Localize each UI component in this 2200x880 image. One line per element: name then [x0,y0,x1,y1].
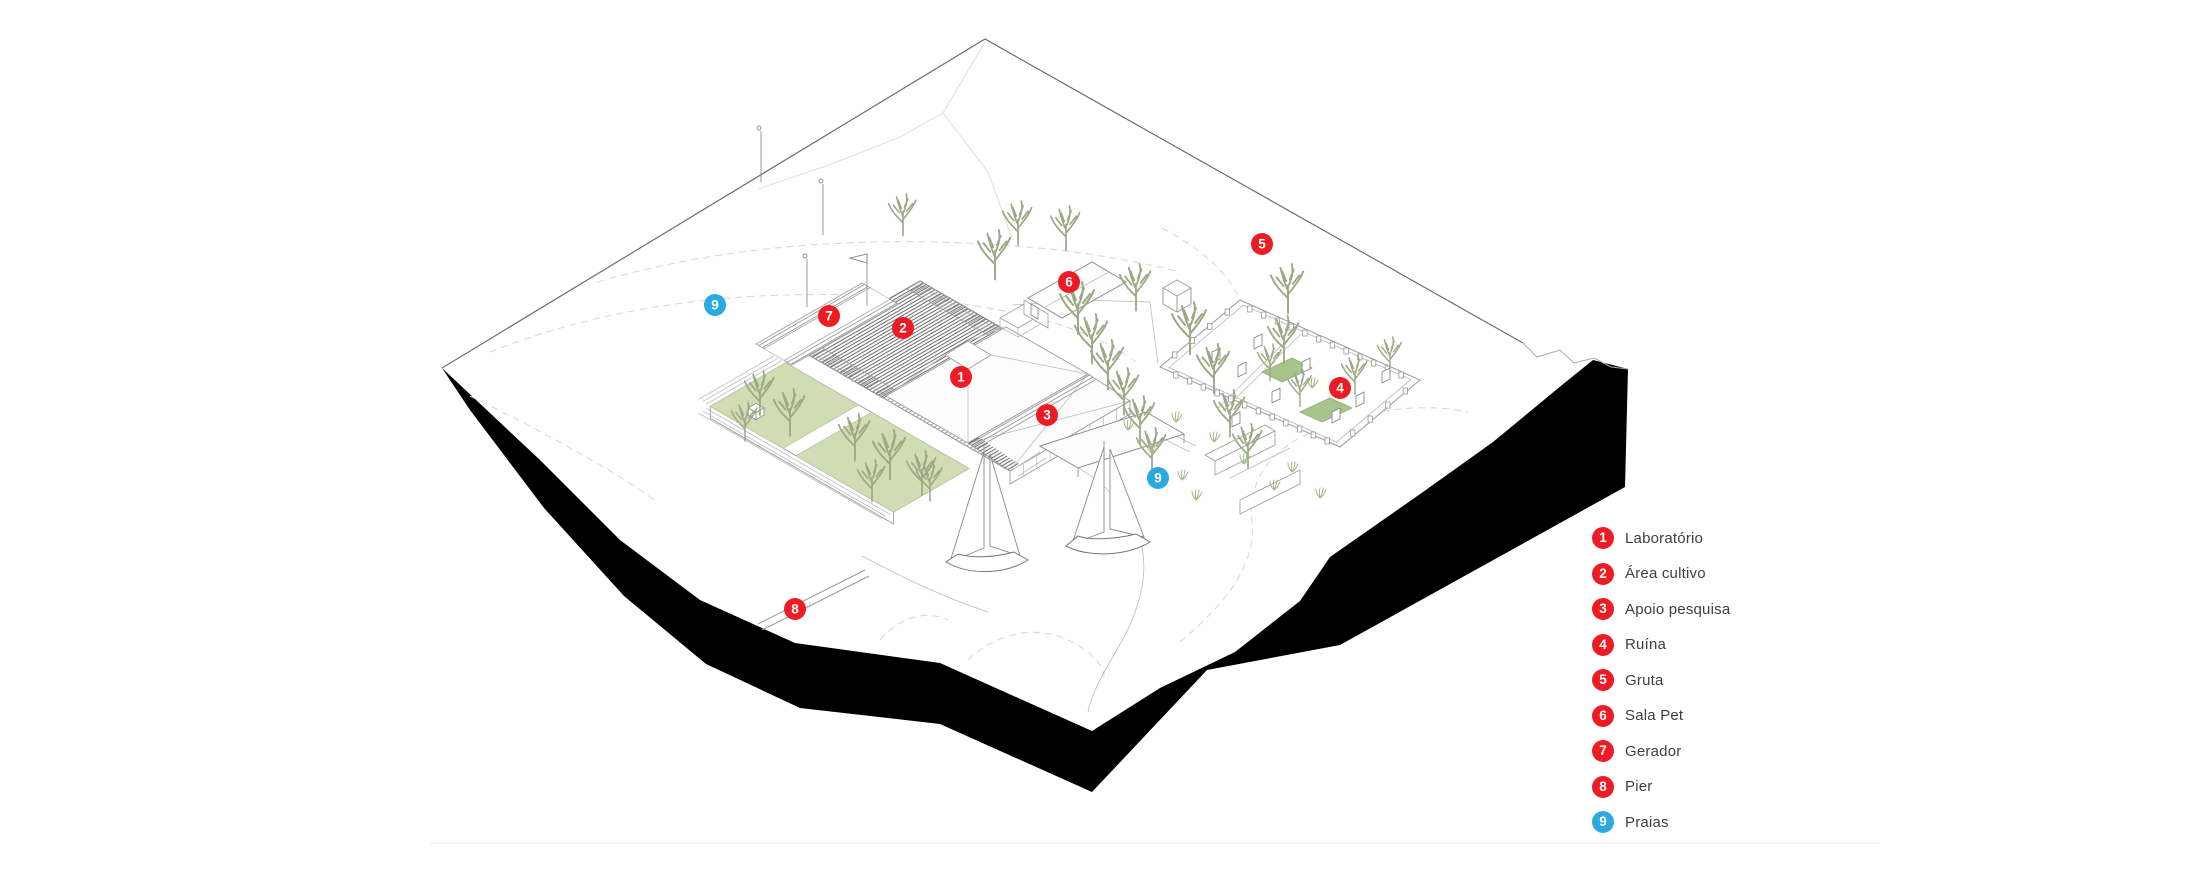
legend-marker-circle: 3 [1592,598,1614,620]
svg-text:9: 9 [1154,471,1162,486]
svg-text:4: 4 [1336,381,1344,396]
legend-marker-circle: 5 [1592,669,1614,691]
flag [850,254,867,263]
svg-text:9: 9 [711,298,719,313]
legend-item-label: Ruína [1625,636,1666,653]
legend-item-label: Pier [1625,778,1652,795]
legend: 1Laboratório2Área cultivo3Apoio pesquisa… [1592,527,1730,833]
svg-text:1: 1 [957,370,965,385]
legend-item-6: 6Sala Pet [1592,705,1730,727]
plan-marker-2-1: 2 [892,317,914,339]
legend-marker-circle: 4 [1592,634,1614,656]
legend-item-9: 9Praias [1592,811,1730,833]
plan-marker-7-6: 7 [818,305,840,327]
svg-text:5: 5 [1258,237,1266,252]
plan-marker-4-3: 4 [1329,377,1351,399]
legend-item-4: 4Ruína [1592,634,1730,656]
svg-text:2: 2 [899,321,907,336]
legend-marker-circle: 7 [1592,740,1614,762]
plan-marker-8-7: 8 [784,598,806,620]
axonometric-site-diagram: 1234567899 1Laboratório2Área cultivo3Apo… [0,0,2200,880]
plan-marker-9-9: 9 [1147,467,1169,489]
site-axonometric-drawing: 1234567899 [0,0,2200,880]
legend-marker-circle: 6 [1592,705,1614,727]
svg-text:8: 8 [791,602,799,617]
plan-marker-5-4: 5 [1251,233,1273,255]
plan-marker-9-8: 9 [704,294,726,316]
legend-item-5: 5Gruta [1592,669,1730,691]
ruin-retaining-walls [1205,425,1300,514]
svg-text:7: 7 [825,309,833,324]
plan-marker-1-0: 1 [950,366,972,388]
legend-item-label: Praias [1625,814,1669,831]
legend-marker-circle: 9 [1592,811,1614,833]
legend-item-label: Gruta [1625,672,1664,689]
legend-item-3: 3Apoio pesquisa [1592,598,1730,620]
plan-marker-6-5: 6 [1058,271,1080,293]
svg-text:6: 6 [1065,275,1073,290]
frame-cube-structure [1163,280,1191,312]
legend-item-label: Área cultivo [1625,565,1706,582]
legend-item-7: 7Gerador [1592,740,1730,762]
legend-marker-circle: 1 [1592,527,1614,549]
svg-text:3: 3 [1043,408,1051,423]
legend-item-label: Apoio pesquisa [1625,601,1730,618]
legend-item-label: Gerador [1625,743,1681,760]
legend-marker-circle: 8 [1592,776,1614,798]
legend-item-2: 2Área cultivo [1592,563,1730,585]
legend-item-label: Laboratório [1625,530,1703,547]
slope-break-lines [758,42,1012,238]
legend-marker-circle: 2 [1592,563,1614,585]
plan-marker-3-2: 3 [1036,404,1058,426]
pier [758,570,869,630]
lamp-posts [757,126,823,307]
legend-item-label: Sala Pet [1625,707,1683,724]
legend-item-8: 8Pier [1592,776,1730,798]
legend-item-1: 1Laboratório [1592,527,1730,549]
